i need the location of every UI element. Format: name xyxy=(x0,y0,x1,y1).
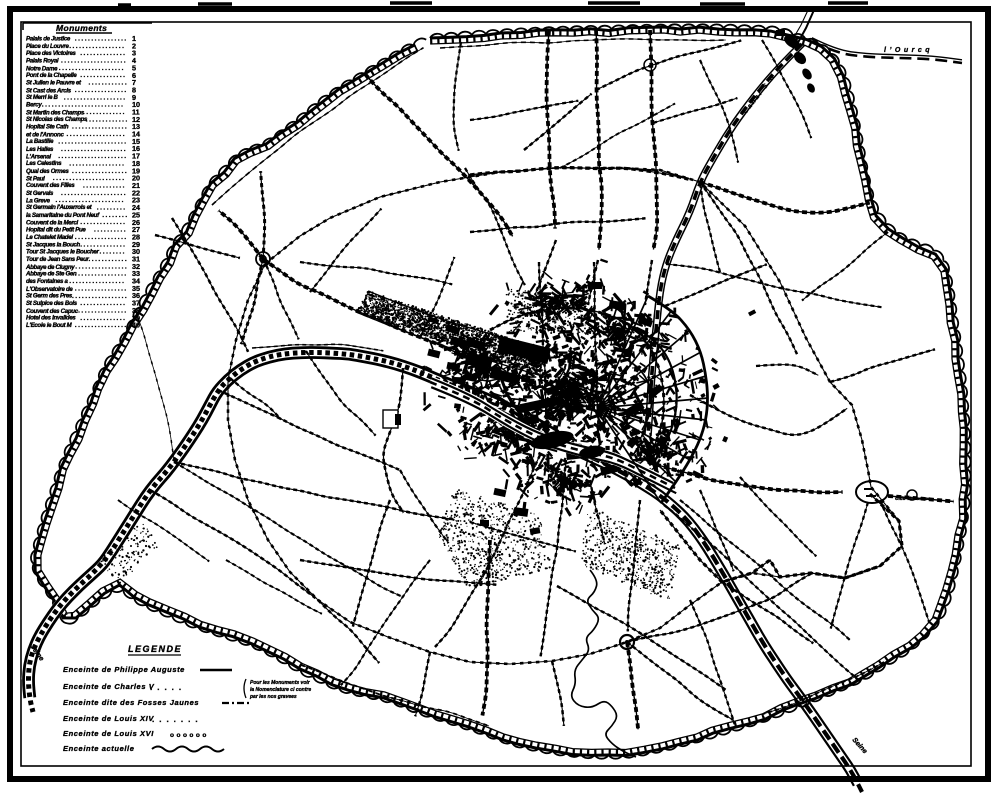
svg-text:St Germ des Pres: St Germ des Pres xyxy=(26,292,73,299)
svg-text:.............: ............. xyxy=(86,116,129,123)
svg-text:....................: .................... xyxy=(61,190,127,197)
svg-text:..............: .............. xyxy=(80,300,126,307)
svg-text:.................: ................. xyxy=(72,168,128,175)
svg-text:Enceinte actuelle: Enceinte actuelle xyxy=(63,744,134,753)
svg-text:la Nomenclature ci contre: la Nomenclature ci contre xyxy=(250,687,311,693)
svg-text:la Samaritaine du Pont Neuf: la Samaritaine du Pont Neuf xyxy=(26,212,100,219)
svg-text:Enceinte de Philippe Auguste: Enceinte de Philippe Auguste xyxy=(63,665,185,674)
svg-text:Monuments: Monuments xyxy=(56,23,107,33)
svg-text:........: ........ xyxy=(100,249,126,256)
svg-text:........: ........ xyxy=(102,212,128,219)
svg-text:Palais Royal: Palais Royal xyxy=(26,58,59,65)
svg-text:.......: ....... xyxy=(152,715,203,724)
svg-text:Place des Victoires: Place des Victoires xyxy=(26,50,77,57)
svg-text:....................: .................... xyxy=(61,58,127,65)
svg-text:.............: ............. xyxy=(83,109,126,116)
svg-text:par les nos gravees: par les nos gravees xyxy=(249,694,297,700)
svg-text:Pont de la Chapelle: Pont de la Chapelle xyxy=(26,72,77,79)
svg-text:40: 40 xyxy=(132,321,140,330)
svg-text:....................: .................... xyxy=(61,146,127,153)
svg-text:..................: .................. xyxy=(67,131,127,138)
svg-text:.............: ............. xyxy=(83,183,126,190)
svg-text:C.de Vincennes: C.de Vincennes xyxy=(895,496,931,502)
svg-text:La Bastille: La Bastille xyxy=(26,138,54,145)
svg-text:.................: ................. xyxy=(69,43,125,50)
svg-text:..........: .......... xyxy=(94,227,127,234)
svg-text:................: ................ xyxy=(75,87,128,94)
svg-text:................: ................ xyxy=(75,322,128,329)
svg-text:............: ............ xyxy=(89,80,129,87)
svg-text:Tour St Jacques le Boucher: Tour St Jacques le Boucher xyxy=(26,248,99,255)
svg-text:................: ................ xyxy=(75,285,128,292)
svg-text:..............: .............. xyxy=(80,315,126,322)
svg-text:L'Ecole le Bout M: L'Ecole le Bout M xyxy=(26,322,73,329)
svg-text:......................: ...................... xyxy=(53,175,126,182)
svg-text:................: ................ xyxy=(75,307,128,314)
svg-text:St Sulpice des Bois: St Sulpice des Bois xyxy=(26,300,78,307)
svg-text:.....................: ..................... xyxy=(58,138,127,145)
svg-text:............: ............ xyxy=(89,256,129,263)
svg-text:Enceinte de Louis XVI: Enceinte de Louis XVI xyxy=(63,729,154,738)
svg-text:Abbaye de Ste Gen: Abbaye de Ste Gen xyxy=(25,270,77,277)
svg-text:Enceinte dite des Fosses Jaune: Enceinte dite des Fosses Jaunes xyxy=(63,698,199,707)
svg-text:..............: .............. xyxy=(80,241,126,248)
svg-text:.................: ................. xyxy=(69,278,125,285)
svg-text:Hopital Ste Cath: Hopital Ste Cath xyxy=(26,124,69,131)
svg-text:.....................: ..................... xyxy=(56,197,125,204)
svg-text:Hotel des Invalides: Hotel des Invalides xyxy=(26,315,76,322)
svg-text:St Gervais: St Gervais xyxy=(26,190,54,197)
svg-text:..............: .............. xyxy=(80,72,126,79)
svg-text:Quai des Ormes: Quai des Ormes xyxy=(26,168,69,175)
svg-text:Enceinte de Charles V: Enceinte de Charles V xyxy=(63,682,155,691)
svg-text:.....................: ..................... xyxy=(58,153,127,160)
svg-text:................: ................ xyxy=(75,234,128,241)
svg-text:.........................: ......................... xyxy=(42,102,125,109)
svg-text:Bercy: Bercy xyxy=(26,102,42,109)
svg-text:.................: ................. xyxy=(72,293,128,300)
svg-text:Hopital dit du Petit Pue: Hopital dit du Petit Pue xyxy=(26,226,86,233)
svg-text:l’Ourcq: l’Ourcq xyxy=(884,47,933,54)
svg-text:.....: ..... xyxy=(150,683,186,692)
svg-text:Enceinte de Louis XIV: Enceinte de Louis XIV xyxy=(63,714,154,723)
svg-text:.................: ................. xyxy=(72,263,128,270)
svg-text:LEGENDE: LEGENDE xyxy=(128,644,182,654)
svg-text:Les Halles: Les Halles xyxy=(26,146,54,153)
svg-text:Pour les Monuments voir: Pour les Monuments voir xyxy=(250,680,311,686)
svg-text:St Nicolas des Champs: St Nicolas des Champs xyxy=(26,116,88,123)
svg-text:.................: ................. xyxy=(72,124,128,131)
svg-text:...................: ................... xyxy=(64,94,127,101)
svg-text:..............: .............. xyxy=(80,50,126,57)
svg-text:................: ................ xyxy=(75,36,128,43)
svg-text:St Julien le Pauvre et: St Julien le Pauvre et xyxy=(26,80,82,87)
svg-text:Palais de Justice: Palais de Justice xyxy=(26,36,71,43)
svg-text:................: ................ xyxy=(75,271,128,278)
svg-text:Le Chatelet Madel: Le Chatelet Madel xyxy=(26,234,73,241)
svg-text:des Fontaines a: des Fontaines a xyxy=(26,278,68,285)
svg-text:.....................: ..................... xyxy=(56,65,125,72)
svg-text:oooooo: oooooo xyxy=(170,732,209,739)
svg-text:St Merri le B: St Merri le B xyxy=(26,94,59,101)
svg-text:.........: ......... xyxy=(97,205,127,212)
svg-text:.................: ................. xyxy=(69,160,125,167)
svg-text:St Germain l'Auxerrois et: St Germain l'Auxerrois et xyxy=(26,204,93,211)
svg-text:Les Celestins: Les Celestins xyxy=(26,160,62,167)
svg-text:Couvent des Filles: Couvent des Filles xyxy=(26,182,75,189)
svg-text:..............: .............. xyxy=(80,219,126,226)
svg-text:Tour de Jean Sans Peur: Tour de Jean Sans Peur xyxy=(26,256,90,263)
